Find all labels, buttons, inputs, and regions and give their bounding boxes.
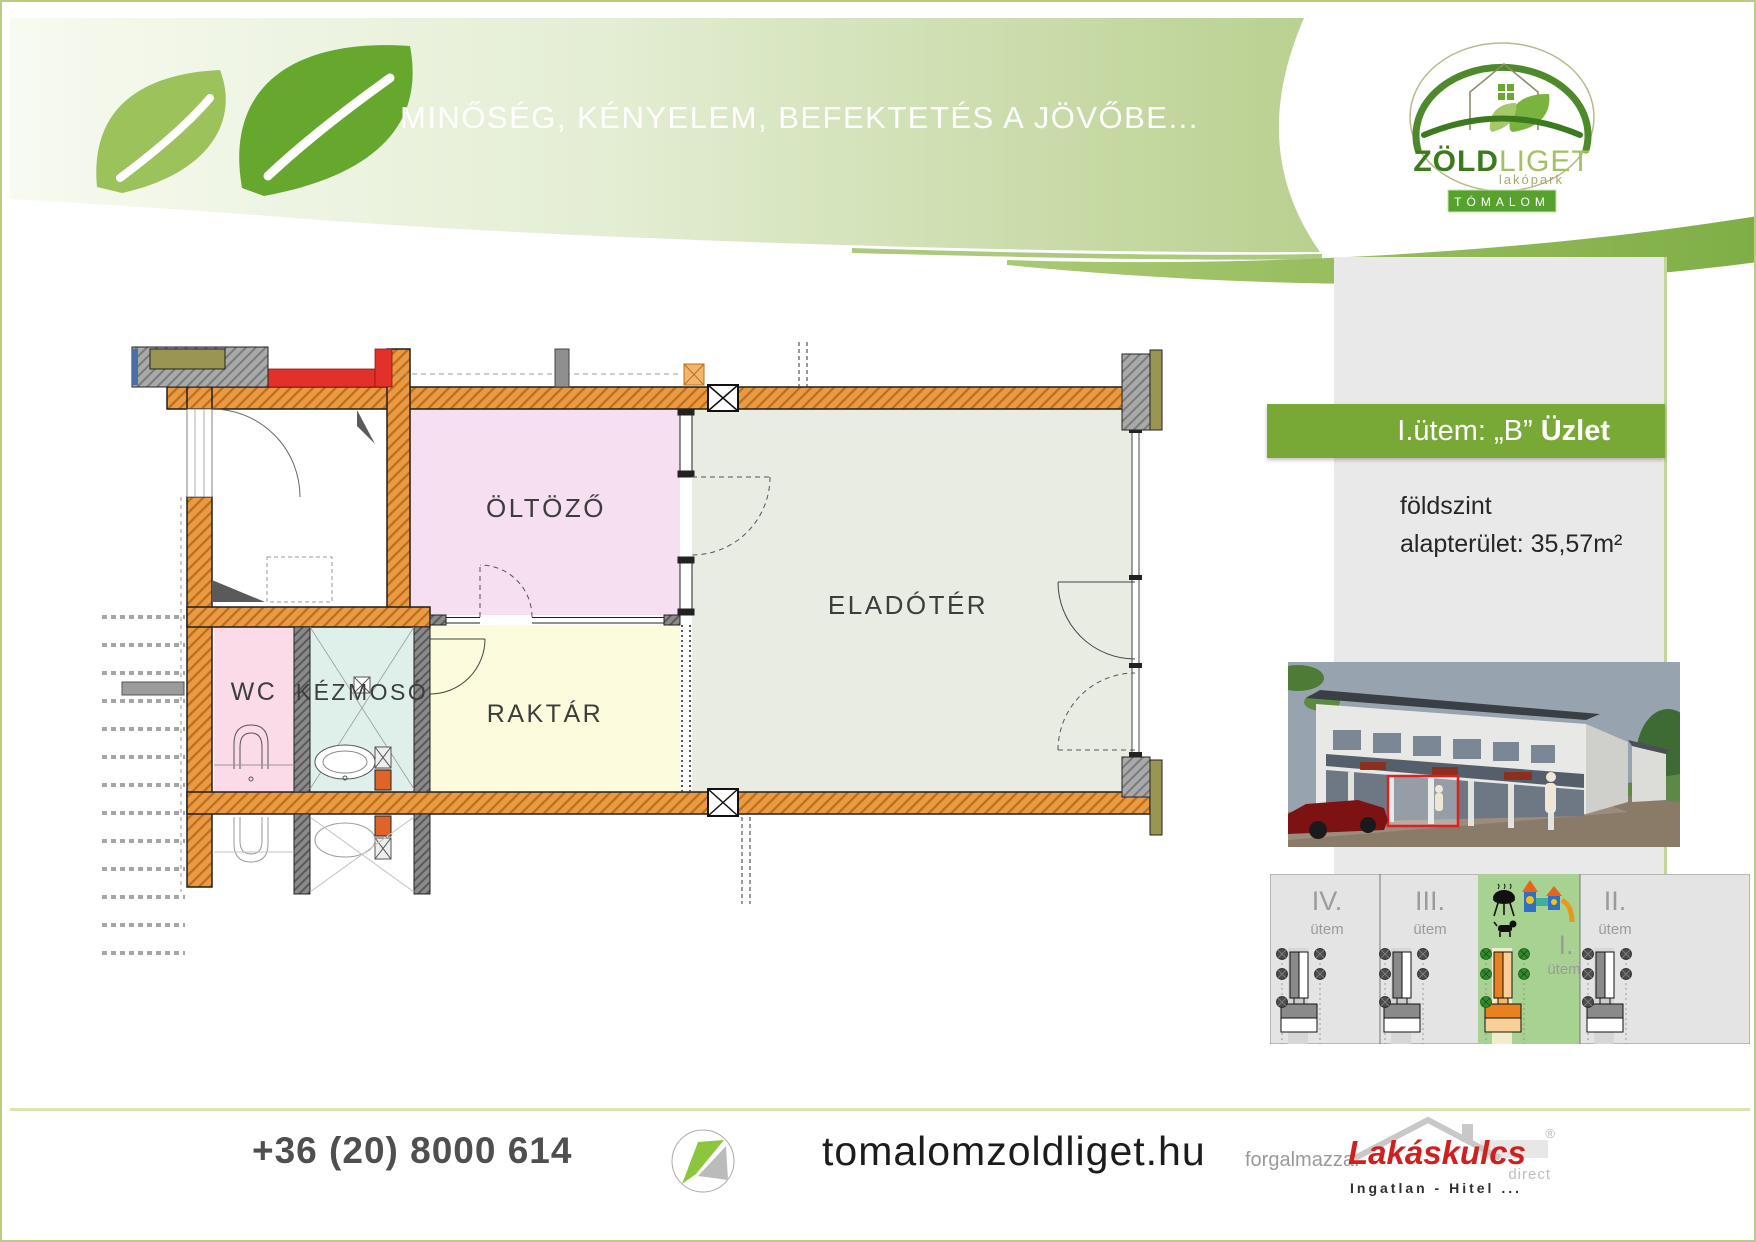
site-map: IV. ütem III. ütem I. ütem II. ütem <box>1270 874 1750 1044</box>
phase-4-numeral: IV. <box>1312 886 1343 916</box>
logo-badge: TÓMALOM <box>1454 194 1550 209</box>
label-kezmoso: KÉZMOSÓ <box>296 679 429 705</box>
flyer-page: MINŐSÉG, KÉNYELEM, BEFEKTETÉS A JÖVŐBE..… <box>0 0 1756 1242</box>
floor-plan: ÖLTÖZŐ ELADÓTÉR WC KÉZMOSÓ RAKTÁR <box>102 292 1202 1052</box>
website-url: tomalomzoldliget.hu <box>822 1128 1206 1175</box>
phase-2-label: ütem <box>1598 921 1631 938</box>
sidebar-edge-line <box>1664 257 1667 962</box>
label-raktar: RAKTÁR <box>487 699 603 728</box>
sidebar-background <box>1334 257 1664 962</box>
phase-3-numeral: III. <box>1415 886 1445 916</box>
phase-2-numeral: II. <box>1604 886 1627 916</box>
brand-name: Lakáskulcs <box>1348 1134 1526 1172</box>
area-label: alapterület: 35,57m² <box>1400 530 1622 559</box>
building-render <box>1288 662 1680 847</box>
dashed-stub-top <box>799 342 807 387</box>
phone-number: +36 (20) 8000 614 <box>252 1130 572 1172</box>
label-wc: WC <box>231 678 278 706</box>
stairs-hatch <box>102 617 185 953</box>
room-entrance <box>214 407 387 607</box>
highlight-rect <box>1388 776 1458 826</box>
phase-banner-unit: Üzlet <box>1541 415 1610 447</box>
terrace-step <box>122 682 184 695</box>
slogan: MINŐSÉG, KÉNYELEM, BEFEKTETÉS A JÖVŐBE..… <box>400 100 1199 135</box>
brand-tagline: Ingatlan - Hitel ... <box>1350 1180 1522 1196</box>
phase-banner-prefix: I.ütem: „B” <box>1397 415 1540 447</box>
partition-raktar-eladoter <box>682 625 690 792</box>
phase-banner: I.ütem: „B” Üzlet <box>1267 404 1665 458</box>
logo-panel <box>1338 18 1750 255</box>
wall-stub <box>555 349 569 387</box>
phase-1-numeral: I. <box>1558 930 1573 960</box>
floor-label: földszint <box>1400 492 1492 521</box>
brand-logo: Lakáskulcs ® direct Ingatlan - Hitel ... <box>1340 1110 1555 1205</box>
logo-subtitle: lakópark <box>1499 172 1564 187</box>
label-eladoter: ELADÓTÉR <box>828 590 988 620</box>
phase-1-label: ütem <box>1547 961 1580 978</box>
partition-oltozo-eladoter <box>678 409 694 615</box>
brand-registered: ® <box>1545 1126 1555 1141</box>
pen-leaf-icon <box>666 1124 740 1198</box>
phase-4-label: ütem <box>1310 921 1343 938</box>
room-wc <box>214 627 294 792</box>
label-oltozo: ÖLTÖZŐ <box>486 493 606 523</box>
corner-block <box>132 347 268 387</box>
phase-3-label: ütem <box>1413 921 1446 938</box>
